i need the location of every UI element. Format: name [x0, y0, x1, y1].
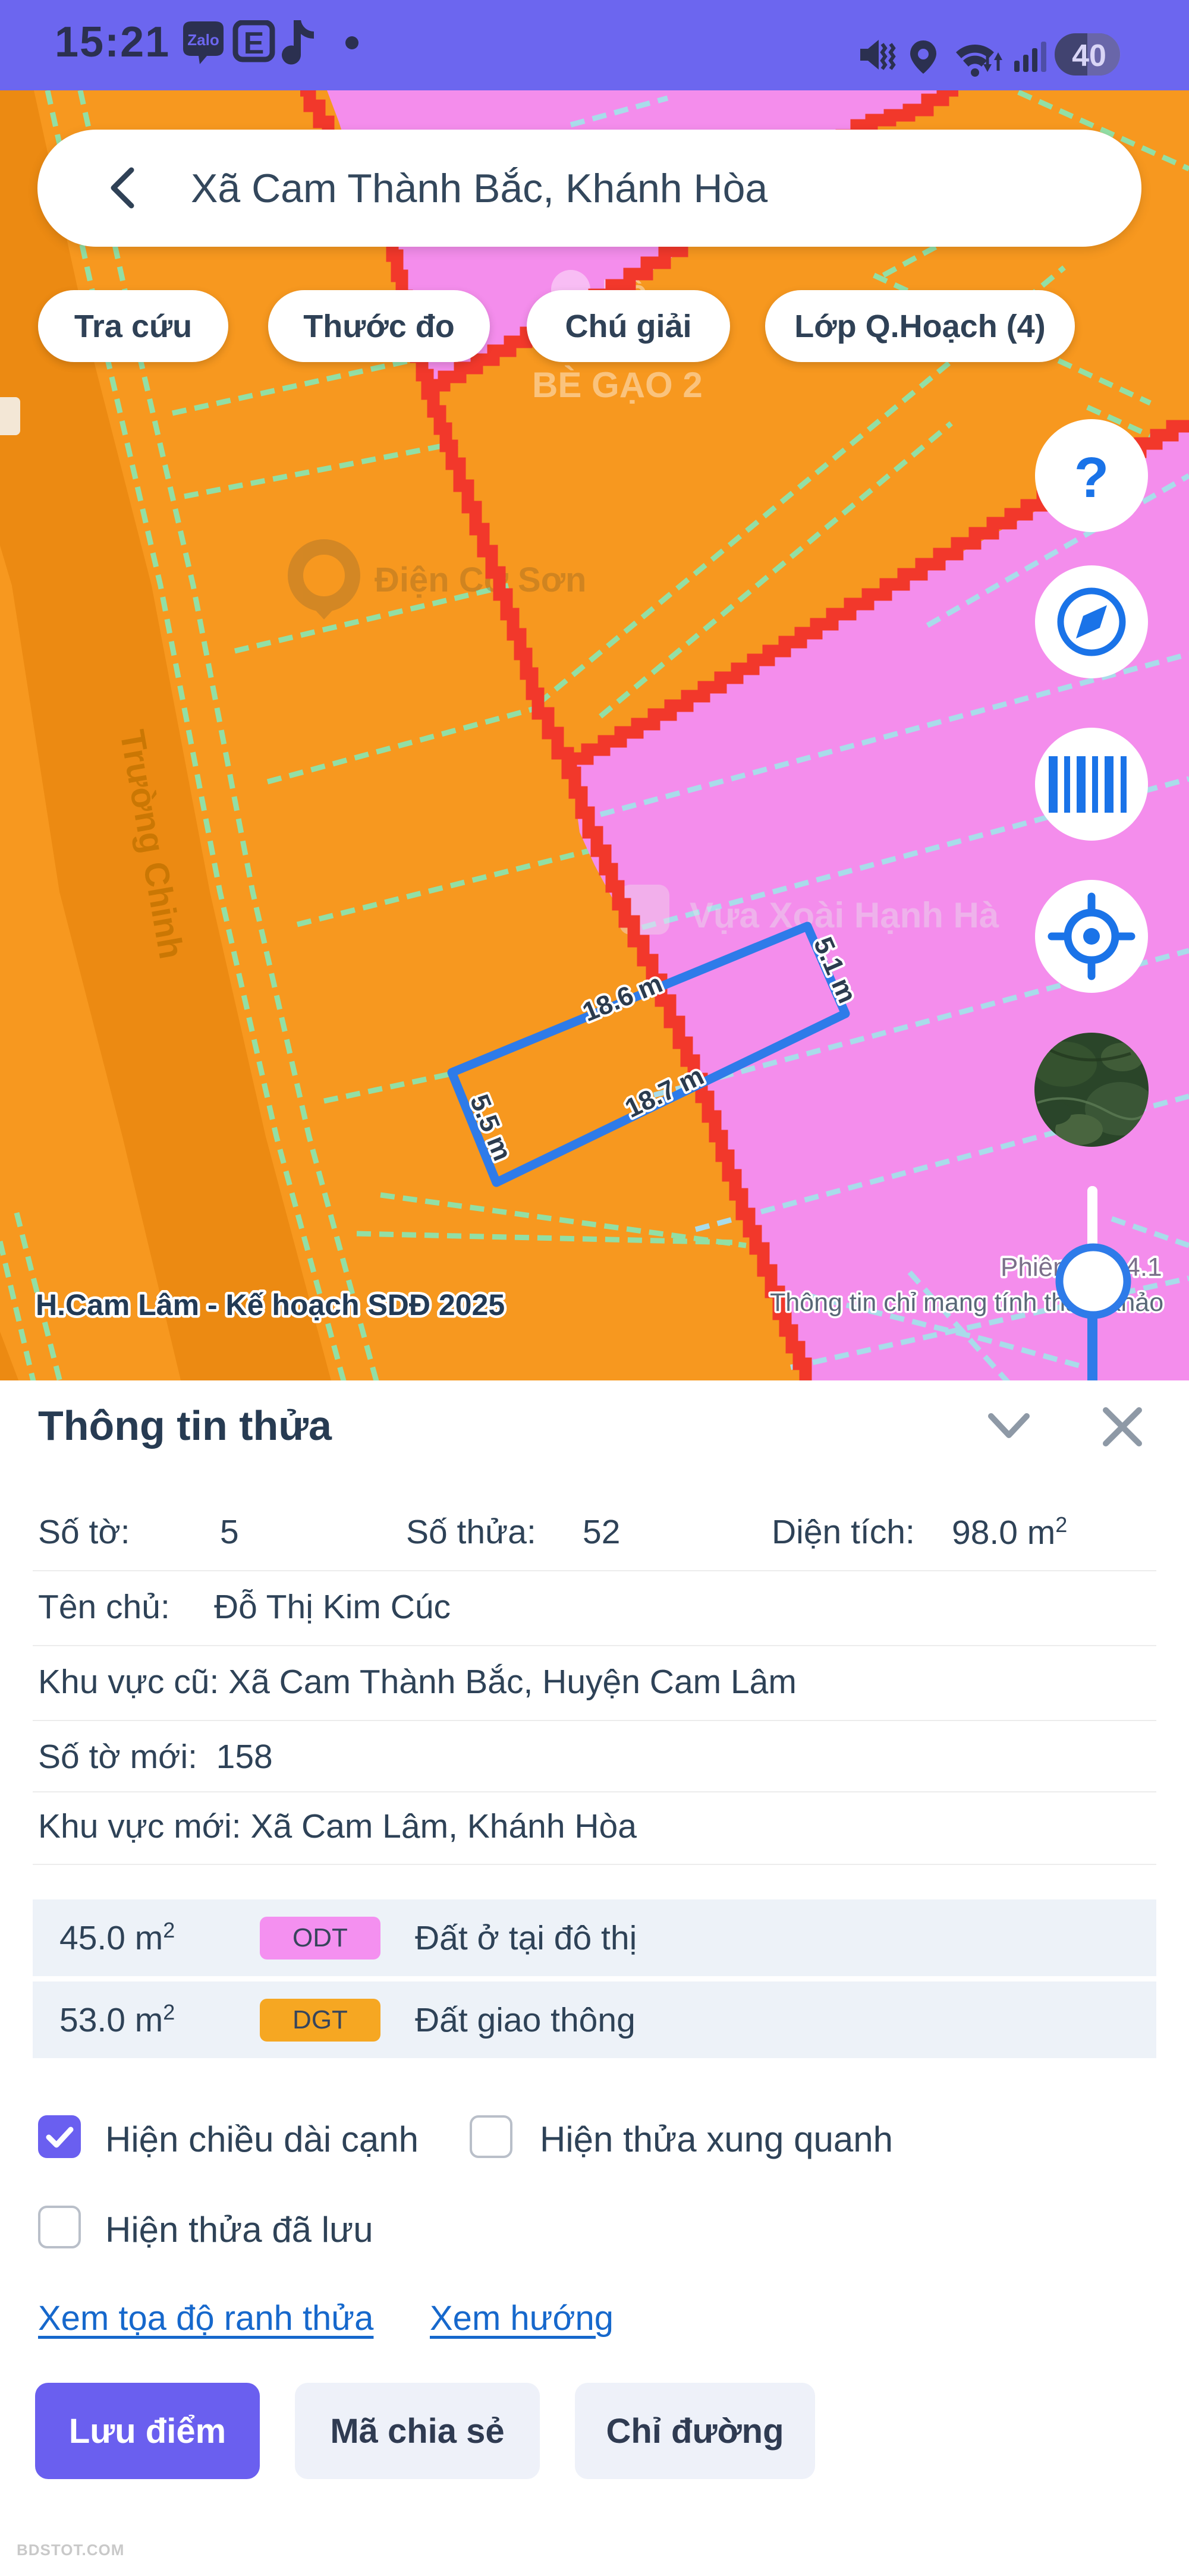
svg-text:E: E — [244, 26, 265, 61]
svg-text:H.Cam Lâm - Kế hoạch SDĐ 2025: H.Cam Lâm - Kế hoạch SDĐ 2025 — [36, 1288, 505, 1322]
svg-text:Zalo: Zalo — [187, 31, 219, 49]
svg-text:40: 40 — [1072, 39, 1106, 73]
svg-text:Vựa Xoài Hạnh Hà: Vựa Xoài Hạnh Hà — [690, 895, 999, 935]
svg-text:BÈ GẠO 2: BÈ GẠO 2 — [532, 365, 703, 405]
svg-text:Điện Cơ Sơn: Điện Cơ Sơn — [375, 561, 586, 599]
svg-text:?: ? — [1074, 446, 1109, 509]
